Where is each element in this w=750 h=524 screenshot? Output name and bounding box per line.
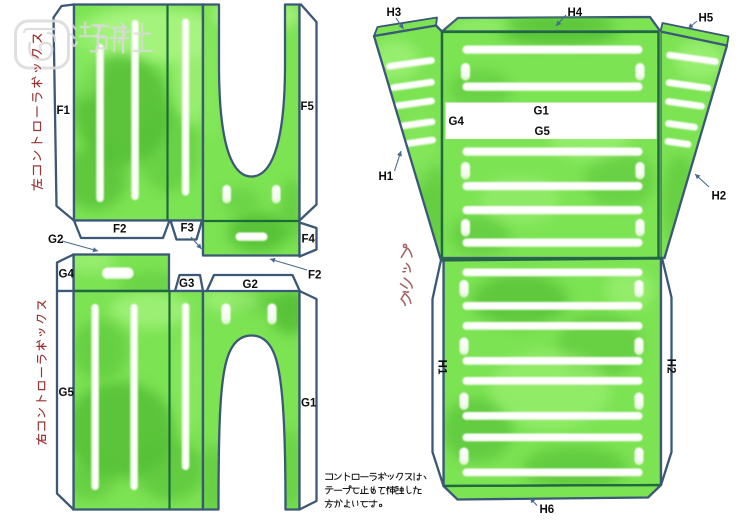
svg-text:G5: G5 [535, 126, 551, 138]
svg-text:G1: G1 [534, 106, 550, 118]
svg-text:G4: G4 [59, 269, 75, 281]
svg-text:G2: G2 [243, 279, 258, 291]
svg-text:F2: F2 [113, 224, 126, 236]
svg-text:H1: H1 [436, 360, 448, 375]
svg-text:H6: H6 [540, 504, 555, 516]
svg-text:G1: G1 [301, 398, 317, 410]
svg-text:G5: G5 [59, 387, 75, 399]
svg-text:F4: F4 [302, 234, 316, 246]
svg-text:F1: F1 [57, 105, 71, 117]
svg-text:G2: G2 [48, 234, 63, 246]
svg-text:H1: H1 [379, 171, 394, 183]
svg-text:H2: H2 [665, 359, 677, 374]
svg-text:H3: H3 [387, 7, 402, 19]
svg-text:F3: F3 [181, 223, 194, 235]
svg-text:G4: G4 [449, 116, 465, 128]
svg-text:F5: F5 [301, 101, 315, 113]
svg-text:H5: H5 [699, 13, 714, 25]
svg-text:F2: F2 [308, 270, 321, 282]
svg-text:H4: H4 [568, 7, 583, 19]
svg-text:G3: G3 [179, 278, 194, 290]
svg-text:H2: H2 [712, 191, 727, 203]
